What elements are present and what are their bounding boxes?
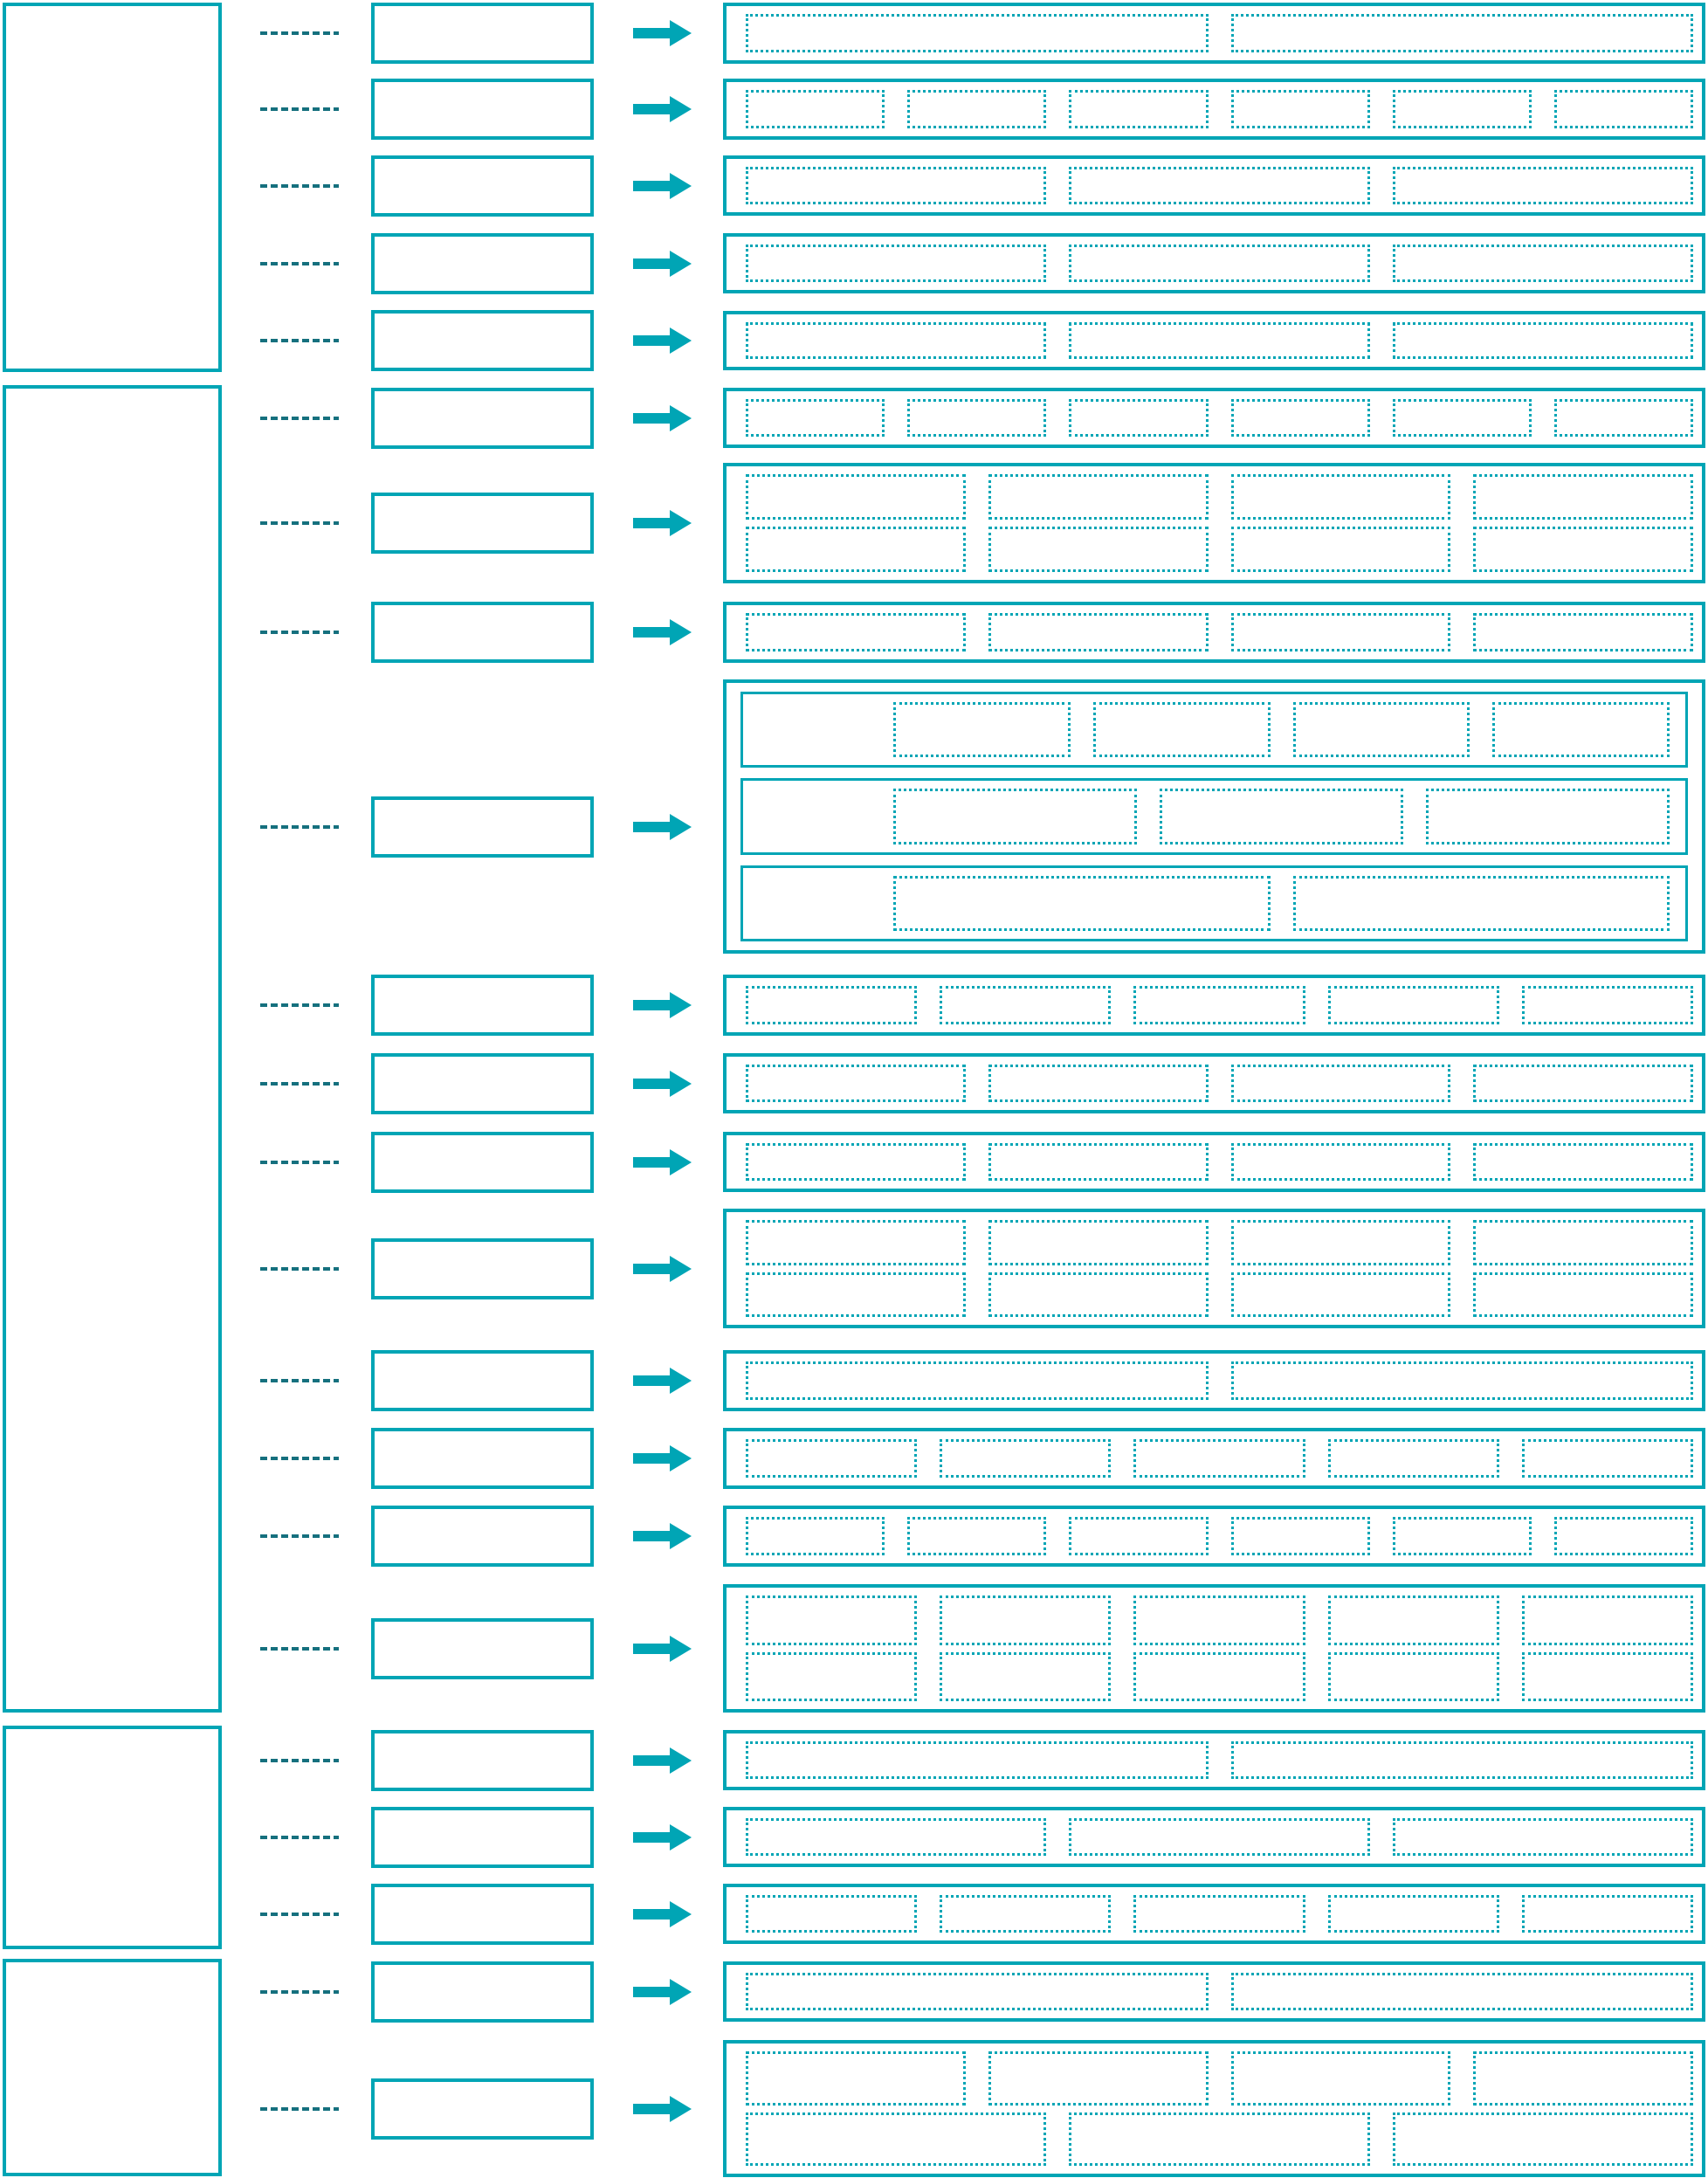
right-container-row7 (723, 463, 1705, 583)
placeholder-cell (1393, 2113, 1693, 2167)
placeholder-cell (1473, 613, 1693, 651)
dashed-connector-row10 (260, 1003, 339, 1007)
cell-row-22-2 (746, 2109, 1693, 2170)
middle-box-row7 (371, 493, 594, 554)
cell-row-21-1 (746, 1969, 1693, 2014)
placeholder-cell (1426, 789, 1670, 844)
placeholder-cell (1133, 986, 1305, 1024)
placeholder-cell (988, 1065, 1209, 1102)
dashed-connector-row2 (260, 107, 339, 111)
middle-box-row12 (371, 1132, 594, 1193)
placeholder-cell (907, 1517, 1046, 1555)
placeholder-cell (746, 1818, 1046, 1856)
placeholder-cell (746, 399, 885, 437)
dashed-connector-row1 (260, 31, 339, 35)
placeholder-cell (1231, 1741, 1694, 1779)
right-container-row21 (723, 1961, 1705, 2022)
placeholder-cell (746, 1065, 966, 1102)
placeholder-cell (1231, 2051, 1451, 2106)
placeholder-cell (746, 986, 917, 1024)
placeholder-cell (1231, 1272, 1451, 1318)
right-arrow-icon-row5 (633, 327, 692, 355)
placeholder-cell (1522, 1652, 1693, 1702)
cell-row-5-1 (746, 319, 1693, 362)
dashed-connector-row22 (260, 2107, 339, 2111)
right-arrow-icon-row10 (633, 991, 692, 1019)
right-container-row15 (723, 1428, 1705, 1489)
placeholder-cell (1393, 90, 1532, 128)
placeholder-cell (746, 1652, 917, 1702)
right-container-row9 (723, 679, 1705, 954)
placeholder-cell (1522, 1895, 1693, 1933)
placeholder-cell (1522, 1596, 1693, 1645)
right-arrow-icon-row15 (633, 1444, 692, 1472)
dashed-connector-row7 (260, 521, 339, 525)
placeholder-cell (746, 1741, 1209, 1779)
placeholder-cell (1231, 399, 1370, 437)
dashed-connector-row3 (260, 184, 339, 188)
middle-box-row1 (371, 3, 594, 64)
placeholder-cell (988, 1220, 1209, 1265)
placeholder-cell (746, 167, 1046, 204)
placeholder-cell (746, 1517, 885, 1555)
placeholder-cell (907, 90, 1046, 128)
right-arrow-icon-row17 (633, 1635, 692, 1663)
dashed-connector-row16 (260, 1534, 339, 1538)
placeholder-cell (988, 527, 1209, 572)
placeholder-cell (907, 399, 1046, 437)
placeholder-cell (893, 876, 1271, 931)
right-container-row1 (723, 3, 1705, 64)
placeholder-cell (1231, 1065, 1451, 1102)
placeholder-cell (746, 1220, 966, 1265)
placeholder-cell (746, 2051, 966, 2106)
placeholder-cell (1069, 1517, 1208, 1555)
right-arrow-icon-row7 (633, 509, 692, 537)
placeholder-cell (746, 1143, 966, 1181)
placeholder-cell (746, 1361, 1209, 1400)
placeholder-cell (1069, 90, 1208, 128)
cell-row-22-1 (746, 2048, 1693, 2109)
middle-box-row5 (371, 310, 594, 371)
middle-box-row21 (371, 1961, 594, 2023)
middle-box-row6 (371, 388, 594, 449)
placeholder-cell (746, 90, 885, 128)
placeholder-cell (1231, 1517, 1370, 1555)
placeholder-cell (1473, 1272, 1693, 1318)
right-arrow-icon-row16 (633, 1522, 692, 1550)
nested-indent-spacer (750, 702, 871, 757)
diagram-canvas (0, 0, 1708, 2178)
right-container-row13 (723, 1209, 1705, 1328)
cell-row-10-1 (746, 982, 1693, 1028)
right-container-row12 (723, 1132, 1705, 1192)
middle-box-row18 (371, 1730, 594, 1791)
middle-box-row10 (371, 975, 594, 1036)
dashed-connector-row17 (260, 1647, 339, 1651)
right-arrow-icon-row22 (633, 2095, 692, 2123)
cell-row-14-1 (746, 1358, 1693, 1403)
placeholder-cell (746, 1895, 917, 1933)
placeholder-cell (746, 2113, 1046, 2167)
placeholder-cell (1328, 1596, 1499, 1645)
right-container-row18 (723, 1730, 1705, 1790)
right-arrow-icon-row14 (633, 1367, 692, 1395)
placeholder-cell (1231, 1361, 1694, 1400)
middle-box-row11 (371, 1053, 594, 1114)
cell-row-2-1 (746, 86, 1693, 132)
placeholder-cell (1231, 613, 1451, 651)
placeholder-cell (1133, 1895, 1305, 1933)
placeholder-cell (1473, 1065, 1693, 1102)
right-arrow-icon-row12 (633, 1148, 692, 1176)
cell-row-17-2 (746, 1649, 1693, 1706)
placeholder-cell (1328, 1652, 1499, 1702)
placeholder-cell (1328, 1895, 1499, 1933)
placeholder-cell (1231, 90, 1370, 128)
right-arrow-icon-row19 (633, 1823, 692, 1851)
placeholder-cell (988, 1143, 1209, 1181)
placeholder-cell (746, 1973, 1209, 2010)
cell-row-13-2 (746, 1269, 1693, 1321)
right-container-row22 (723, 2040, 1705, 2177)
nested-indent-spacer (750, 876, 871, 931)
right-container-row20 (723, 1884, 1705, 1944)
cell-row-3-1 (746, 163, 1693, 208)
right-arrow-icon-row13 (633, 1255, 692, 1283)
right-container-row4 (723, 233, 1705, 293)
dashed-connector-row4 (260, 262, 339, 265)
middle-box-row15 (371, 1428, 594, 1489)
dashed-connector-row18 (260, 1759, 339, 1762)
middle-box-row13 (371, 1238, 594, 1299)
placeholder-cell (1522, 1439, 1693, 1478)
placeholder-cell (1328, 1439, 1499, 1478)
placeholder-cell (746, 1596, 917, 1645)
placeholder-cell (1522, 986, 1693, 1024)
dashed-connector-row6 (260, 417, 339, 420)
dashed-connector-row13 (260, 1267, 339, 1271)
placeholder-cell (893, 702, 1071, 757)
placeholder-cell (988, 474, 1209, 520)
middle-box-row8 (371, 602, 594, 663)
placeholder-cell (746, 322, 1046, 359)
placeholder-cell (1093, 702, 1271, 757)
left-group-3 (3, 1726, 222, 1949)
right-container-row2 (723, 79, 1705, 140)
cell-row-8-1 (746, 610, 1693, 655)
cell-row-11-1 (746, 1061, 1693, 1106)
placeholder-cell (1231, 527, 1451, 572)
right-container-row14 (723, 1350, 1705, 1411)
placeholder-cell (1393, 245, 1693, 282)
dashed-connector-row12 (260, 1161, 339, 1164)
cell-row-7-1 (746, 471, 1693, 523)
placeholder-cell (940, 986, 1111, 1024)
placeholder-cell (1328, 986, 1499, 1024)
middle-box-row17 (371, 1618, 594, 1679)
left-group-2 (3, 385, 222, 1713)
middle-box-row2 (371, 79, 594, 140)
placeholder-cell (1069, 245, 1369, 282)
middle-box-row14 (371, 1350, 594, 1411)
right-arrow-icon-row4 (633, 250, 692, 278)
placeholder-cell (1069, 399, 1208, 437)
right-arrow-icon-row1 (633, 19, 692, 47)
placeholder-cell (1133, 1652, 1305, 1702)
placeholder-cell (988, 2051, 1209, 2106)
placeholder-cell (1293, 876, 1670, 931)
placeholder-cell (940, 1439, 1111, 1478)
dashed-connector-row19 (260, 1836, 339, 1839)
placeholder-cell (1393, 399, 1532, 437)
placeholder-cell (940, 1895, 1111, 1933)
placeholder-cell (746, 613, 966, 651)
placeholder-cell (1069, 1818, 1369, 1856)
placeholder-cell (1393, 322, 1693, 359)
right-container-row16 (723, 1506, 1705, 1567)
nested-box-row9-3 (740, 865, 1688, 941)
middle-box-row4 (371, 233, 594, 294)
cell-row-1-1 (746, 10, 1693, 56)
dashed-connector-row8 (260, 631, 339, 634)
placeholder-cell (1473, 1220, 1693, 1265)
placeholder-cell (988, 1272, 1209, 1318)
placeholder-cell (1133, 1439, 1305, 1478)
placeholder-cell (1133, 1596, 1305, 1645)
cell-row-17-1 (746, 1592, 1693, 1649)
placeholder-cell (1069, 2113, 1369, 2167)
placeholder-cell (940, 1596, 1111, 1645)
right-container-row19 (723, 1807, 1705, 1867)
right-container-row10 (723, 975, 1705, 1036)
cell-row-19-1 (746, 1815, 1693, 1859)
dashed-connector-row15 (260, 1457, 339, 1460)
right-arrow-icon-row11 (633, 1070, 692, 1098)
right-container-row5 (723, 311, 1705, 370)
placeholder-cell (746, 474, 966, 520)
placeholder-cell (1231, 474, 1451, 520)
cell-row-12-1 (746, 1140, 1693, 1184)
cell-row-20-1 (746, 1892, 1693, 1936)
placeholder-cell (1069, 167, 1369, 204)
dashed-connector-row20 (260, 1913, 339, 1916)
dashed-connector-row11 (260, 1082, 339, 1086)
placeholder-cell (988, 613, 1209, 651)
nested-indent-spacer (750, 789, 871, 844)
placeholder-cell (1231, 1220, 1451, 1265)
middle-box-row3 (371, 155, 594, 217)
placeholder-cell (746, 1272, 966, 1318)
placeholder-cell (746, 14, 1209, 52)
left-group-1 (3, 3, 222, 372)
right-arrow-icon-row18 (633, 1747, 692, 1775)
placeholder-cell (1231, 1973, 1694, 2010)
middle-box-row19 (371, 1807, 594, 1868)
placeholder-cell (746, 527, 966, 572)
right-arrow-icon-row21 (633, 1978, 692, 2006)
middle-box-row20 (371, 1884, 594, 1945)
middle-box-row16 (371, 1506, 594, 1567)
right-container-row17 (723, 1584, 1705, 1713)
placeholder-cell (1554, 399, 1693, 437)
placeholder-cell (1393, 1818, 1693, 1856)
right-arrow-icon-row20 (633, 1900, 692, 1928)
placeholder-cell (1473, 2051, 1693, 2106)
placeholder-cell (1393, 1517, 1532, 1555)
placeholder-cell (1231, 1143, 1451, 1181)
right-arrow-icon-row3 (633, 172, 692, 200)
middle-box-row22 (371, 2078, 594, 2140)
placeholder-cell (1160, 789, 1403, 844)
placeholder-cell (1069, 322, 1369, 359)
placeholder-cell (1492, 702, 1670, 757)
left-group-4 (3, 1959, 222, 2176)
right-container-row3 (723, 155, 1705, 216)
nested-box-row9-2 (740, 778, 1688, 854)
placeholder-cell (1473, 527, 1693, 572)
right-arrow-icon-row8 (633, 618, 692, 646)
cell-row-7-2 (746, 523, 1693, 576)
placeholder-cell (746, 1439, 917, 1478)
right-arrow-icon-row6 (633, 404, 692, 432)
right-arrow-icon-row9 (633, 813, 692, 841)
right-container-row11 (723, 1053, 1705, 1113)
cell-row-18-1 (746, 1738, 1693, 1782)
placeholder-cell (1473, 474, 1693, 520)
nested-box-row9-1 (740, 692, 1688, 768)
dashed-connector-row14 (260, 1379, 339, 1382)
right-container-row6 (723, 388, 1705, 448)
placeholder-cell (940, 1652, 1111, 1702)
cell-row-4-1 (746, 241, 1693, 286)
cell-row-15-1 (746, 1436, 1693, 1481)
cell-row-13-1 (746, 1217, 1693, 1269)
dashed-connector-row9 (260, 825, 339, 829)
placeholder-cell (1293, 702, 1470, 757)
placeholder-cell (1554, 90, 1693, 128)
dashed-connector-row21 (260, 1990, 339, 1994)
placeholder-cell (1554, 1517, 1693, 1555)
placeholder-cell (1231, 14, 1694, 52)
cell-row-16-1 (746, 1513, 1693, 1559)
middle-box-row9 (371, 796, 594, 858)
placeholder-cell (1393, 167, 1693, 204)
dashed-connector-row5 (260, 339, 339, 342)
placeholder-cell (1473, 1143, 1693, 1181)
placeholder-cell (746, 245, 1046, 282)
placeholder-cell (893, 789, 1137, 844)
right-arrow-icon-row2 (633, 95, 692, 123)
right-container-row8 (723, 602, 1705, 663)
cell-row-6-1 (746, 396, 1693, 440)
